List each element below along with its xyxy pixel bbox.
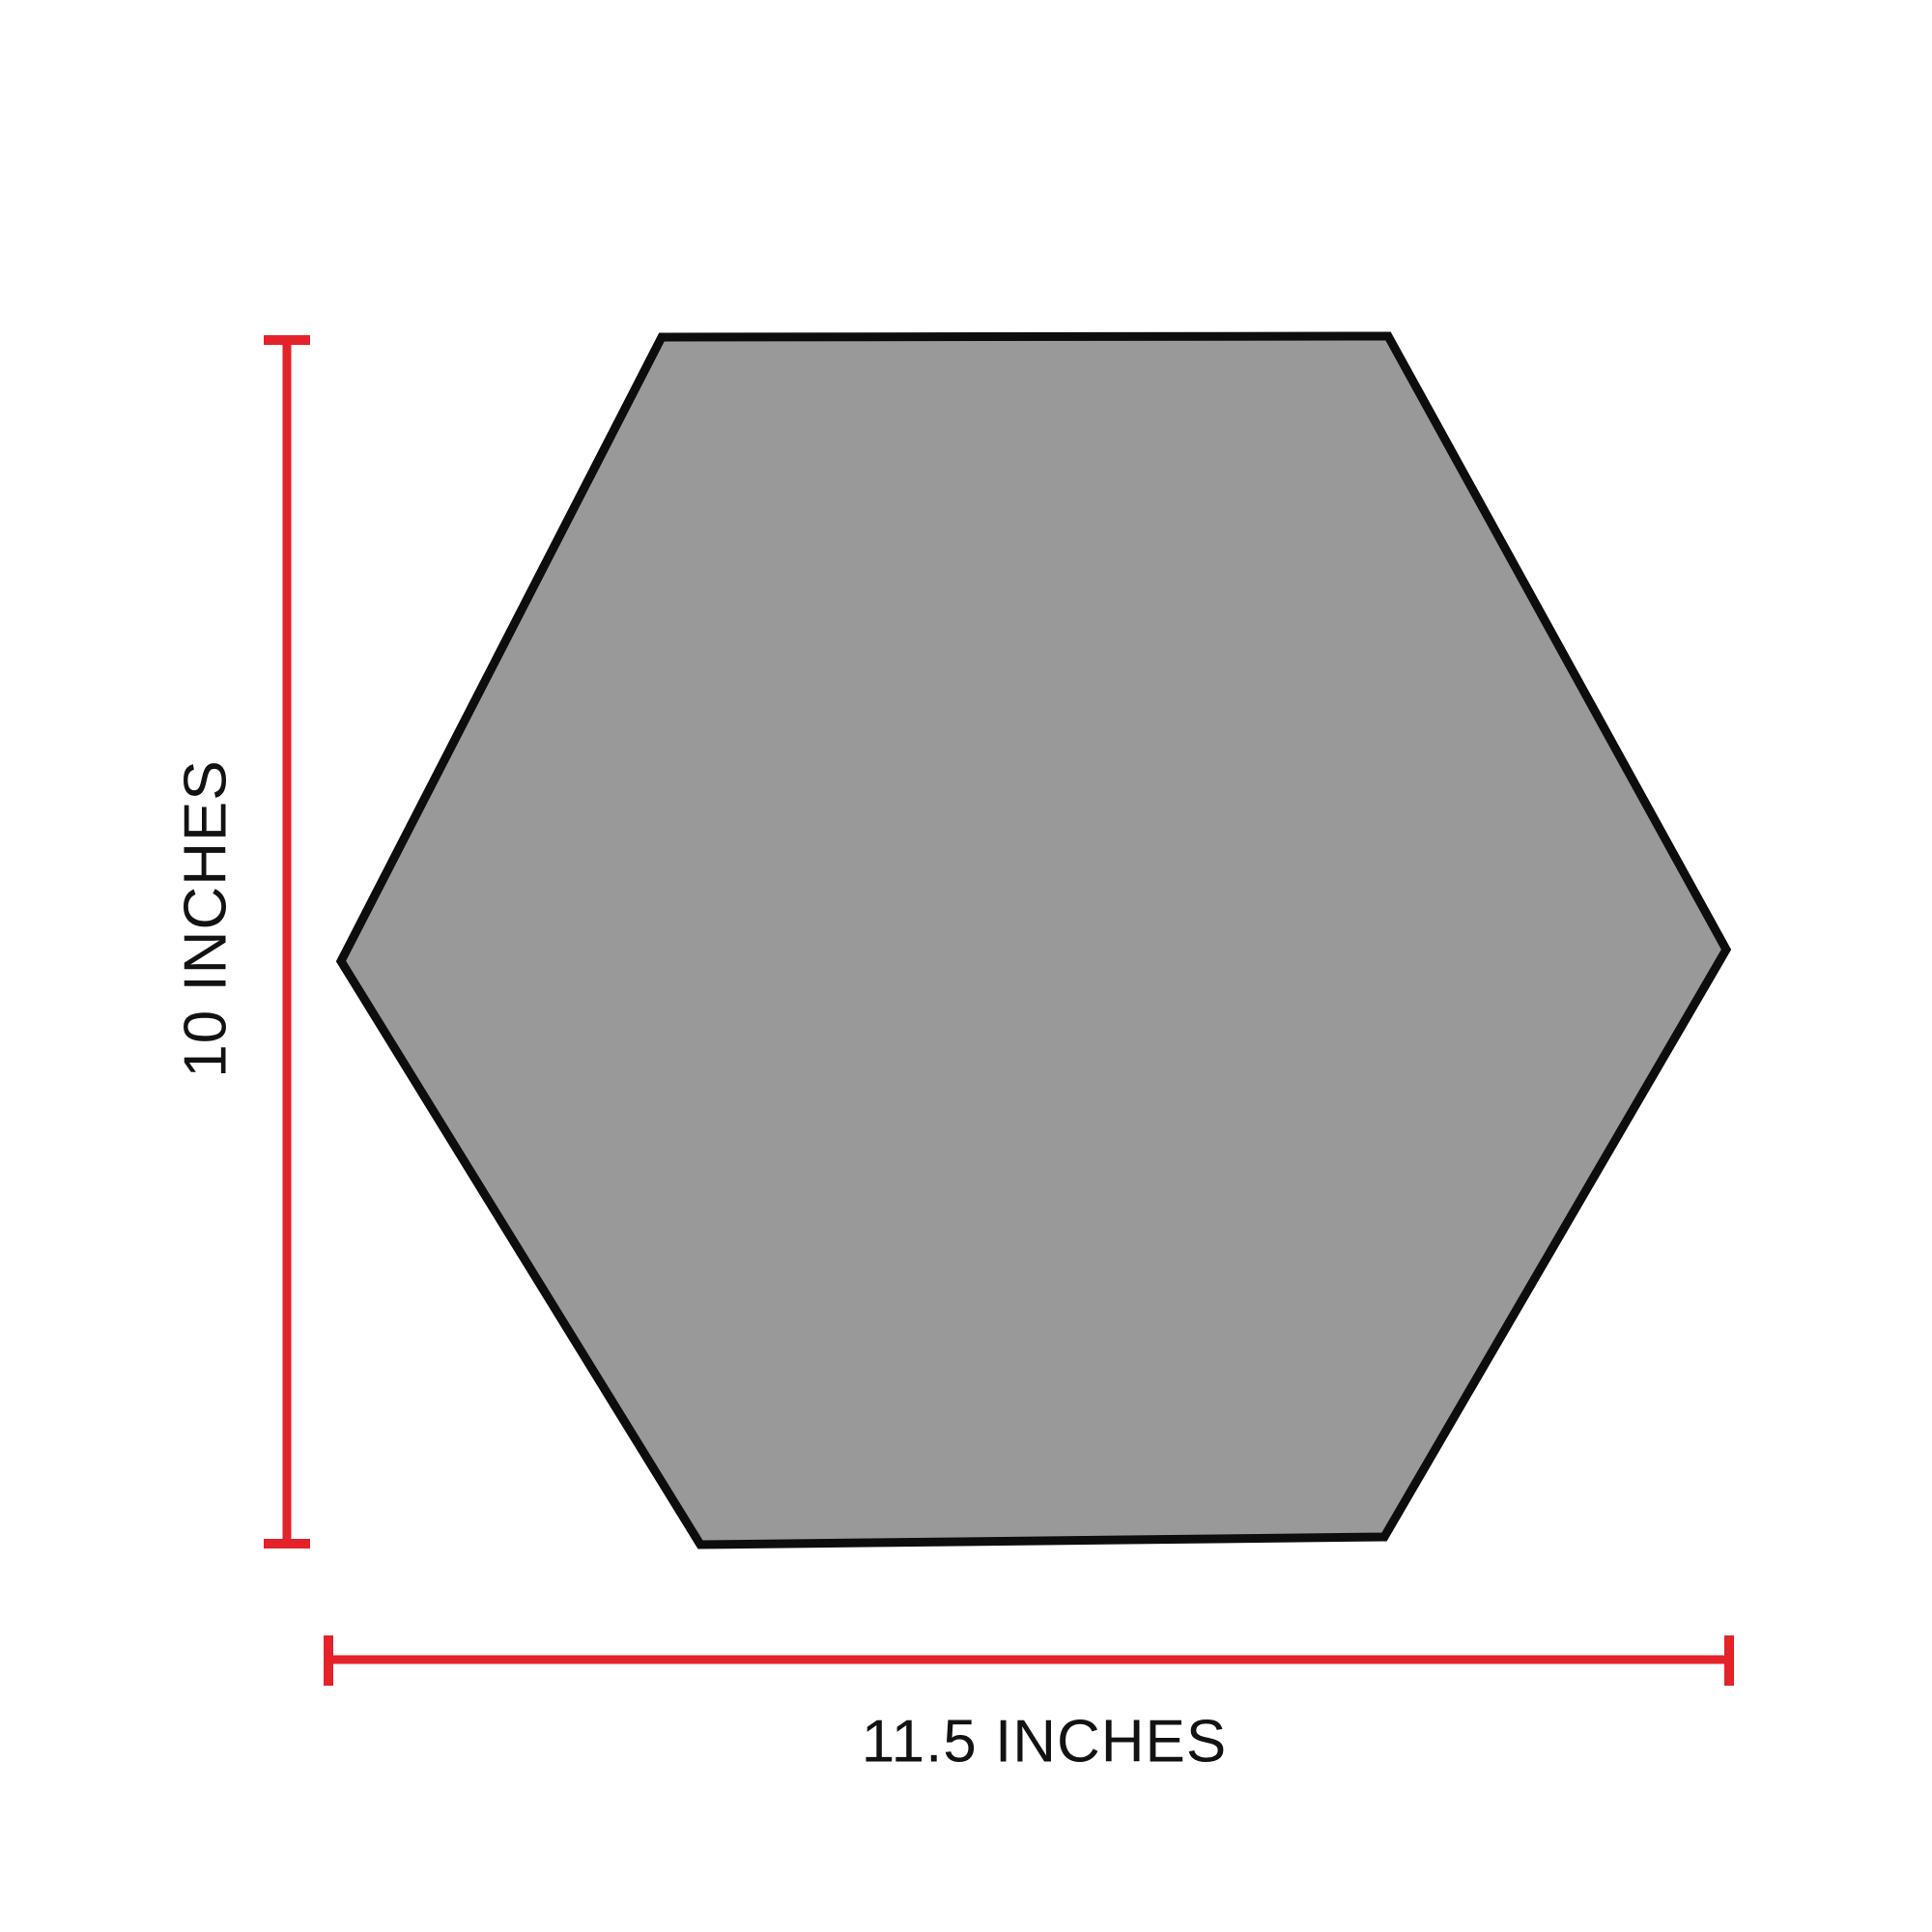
width-dimension-label: 11.5 INCHES bbox=[862, 1708, 1228, 1776]
height-dimension-line bbox=[264, 340, 310, 1544]
diagram-canvas: 10 INCHES 11.5 INCHES bbox=[0, 0, 1932, 1932]
width-dimension-line bbox=[328, 1635, 1729, 1686]
hexagon-dimension-diagram bbox=[0, 0, 1932, 1932]
height-dimension-label: 10 INCHES bbox=[172, 759, 241, 1077]
hexagon-shape bbox=[341, 336, 1726, 1545]
